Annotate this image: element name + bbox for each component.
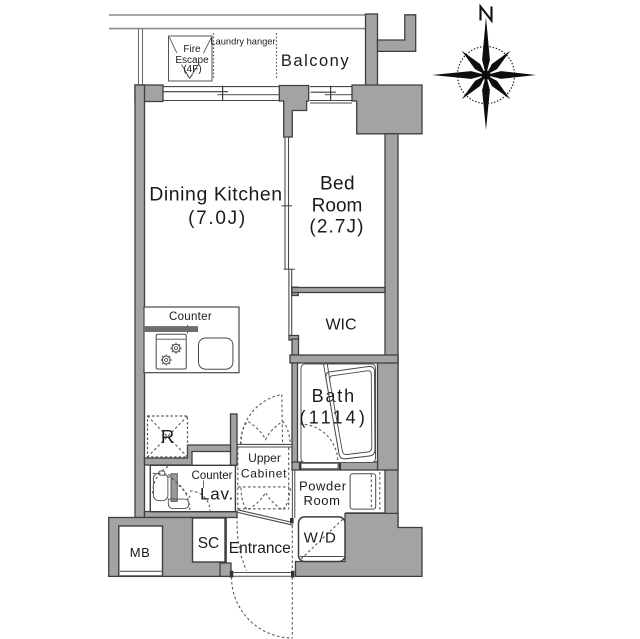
svg-text:Upper: Upper <box>248 451 281 465</box>
svg-text:(7.0J): (7.0J) <box>188 208 247 229</box>
svg-text:Room: Room <box>303 493 340 508</box>
svg-text:Room: Room <box>312 196 363 217</box>
svg-text:WIC: WIC <box>325 317 356 334</box>
svg-text:Powder: Powder <box>299 479 347 494</box>
svg-text:Balcony: Balcony <box>281 52 350 70</box>
svg-text:(2.7J): (2.7J) <box>309 216 364 237</box>
svg-text:MB: MB <box>130 545 151 560</box>
svg-text:Bed: Bed <box>320 174 355 195</box>
svg-text:Cabinet: Cabinet <box>241 467 287 481</box>
svg-text:SC: SC <box>198 535 220 552</box>
svg-text:(4F): (4F) <box>183 64 201 75</box>
svg-text:Counter: Counter <box>192 470 233 482</box>
svg-text:Lav.: Lav. <box>200 485 234 504</box>
svg-text:Counter: Counter <box>169 311 212 323</box>
svg-text:Laundry hanger: Laundry hanger <box>210 37 275 47</box>
svg-text:Dining Kitchen: Dining Kitchen <box>149 184 282 206</box>
svg-text:W/D: W/D <box>304 530 338 547</box>
svg-text:Entrance: Entrance <box>229 540 291 557</box>
svg-text:R: R <box>161 426 174 447</box>
svg-text:Fire: Fire <box>183 44 201 55</box>
